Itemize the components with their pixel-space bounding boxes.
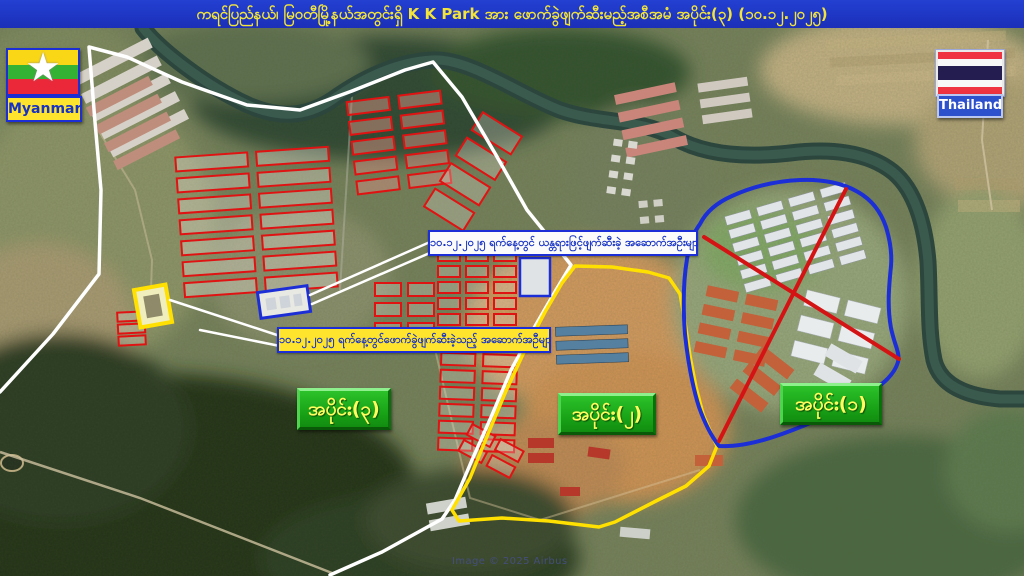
machinery-destroyed-building	[257, 286, 310, 319]
satellite-map[interactable]: ★ Myanmar Thailand ၁၀.၁၂.၂၀၂၅ ရက်နေ့တွင်…	[0, 28, 1024, 576]
zone-1-label: အပိုင်း(၁)	[780, 383, 882, 425]
blue-marked-building	[520, 258, 550, 296]
myanmar-label: Myanmar	[6, 96, 82, 122]
thailand-label: Thailand	[937, 94, 1003, 118]
zone-2-label: အပိုင်း(၂)	[558, 393, 656, 435]
demolished-building	[134, 285, 172, 328]
imagery-credit: Image © 2025 Airbus	[452, 556, 568, 567]
myanmar-flag: ★	[6, 48, 80, 96]
myanmar-flag-star-icon: ★	[8, 46, 78, 90]
callout-demolition-destroyed: ၁၀.၁၂.၂၀၂၅ ရက်နေ့တွင်ဖောက်ခွဲဖျက်ဆီးခဲ့သ…	[277, 327, 551, 353]
map-canvas	[0, 28, 1024, 576]
thailand-flag	[936, 50, 1004, 96]
zone-3-label: အပိုင်း(၃)	[297, 388, 391, 430]
title-text: ကရင်ပြည်နယ်၊ မြဝတီမြို့နယ်အတွင်းရှိ K K …	[196, 5, 827, 23]
kk-park-annotated-map-page: ကရင်ပြည်နယ်၊ မြဝတီမြို့နယ်အတွင်းရှိ K K …	[0, 0, 1024, 576]
callout-machinery-destroyed: ၁၀.၁၂.၂၀၂၅ ရက်နေ့တွင် ယန္တရားဖြင့်ဖျက်ဆီ…	[428, 230, 698, 256]
title-bar: ကရင်ပြည်နယ်၊ မြဝတီမြို့နယ်အတွင်းရှိ K K …	[0, 0, 1024, 28]
